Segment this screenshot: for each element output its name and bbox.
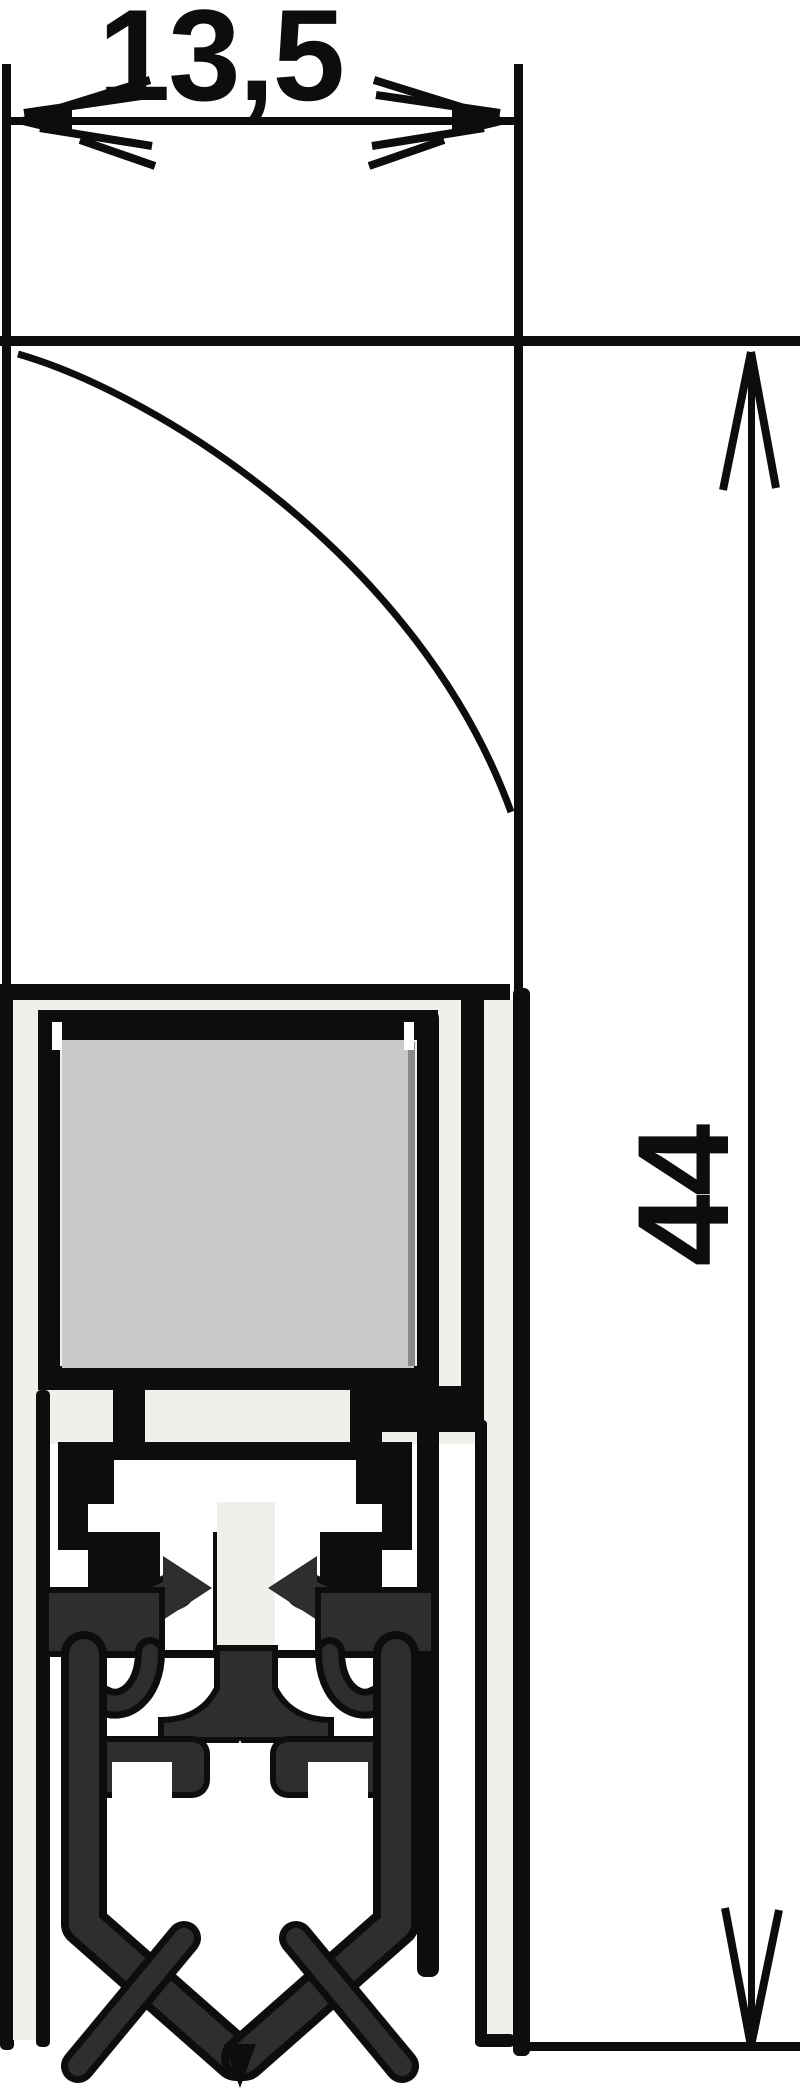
center-notch	[212, 1740, 268, 1798]
right-wall-upper	[514, 64, 523, 992]
width-dim-label: 13,5	[98, 0, 343, 128]
inner-left-wall-line	[36, 1390, 50, 2047]
center-cavity	[106, 1798, 374, 2054]
door-swing-arc	[18, 354, 511, 812]
rail-lip-right	[356, 1460, 382, 1504]
height-arrow-top-barb-1	[723, 352, 751, 490]
housing-middle-bar	[0, 984, 510, 1000]
seal-profile-drawing: 13,5 44	[0, 0, 800, 2094]
height-arrow-bottom-barb-1	[725, 1908, 751, 2046]
foot-right-notch	[308, 1762, 368, 1798]
inner-right-wall-upper	[461, 1000, 484, 1432]
casing-left-strip	[13, 1444, 38, 2040]
height-arrow-bottom-barb-2	[751, 1910, 779, 2046]
width-dimension-group: 13,5	[6, 0, 518, 166]
pocket-frame-top	[38, 1010, 438, 1040]
height-dim-label: 44	[610, 1124, 756, 1266]
left-wall-upper	[2, 64, 11, 986]
rail-wall-right	[382, 1442, 412, 1550]
pocket-frame-right	[417, 1010, 439, 1977]
drawing-canvas: 13,5 44	[0, 0, 800, 2094]
pocket-slit-right	[404, 1022, 414, 1050]
pocket-frame-left	[38, 1010, 60, 1390]
rail-stem-right	[350, 1384, 382, 1448]
wing-hook-left	[102, 1652, 150, 1704]
rail-lip-left	[88, 1460, 114, 1504]
inner-right-wall-lower	[475, 1420, 487, 2046]
foam-block	[62, 1040, 414, 1368]
wing-hook-right	[330, 1652, 378, 1704]
foam-edge-shadow	[408, 1042, 415, 1366]
casing-right-strip	[484, 1444, 513, 2036]
rail-wall-left	[58, 1442, 88, 1550]
rubber-center-stem	[217, 1502, 275, 1662]
housing-top-line	[0, 336, 800, 346]
pocket-slit-left	[52, 1022, 62, 1050]
rubber-trumpet	[161, 1648, 331, 1740]
left-wall-lower	[0, 984, 14, 2050]
right-wall-lower	[513, 988, 530, 2056]
rail-stem-left	[113, 1384, 145, 1448]
pocket-right-junction-block	[382, 1386, 461, 1432]
height-dimension-group: 44	[530, 352, 800, 2051]
rail-top-plate	[58, 1442, 412, 1460]
foot-left-notch	[112, 1762, 172, 1798]
height-dim-bottom-extension	[530, 2042, 800, 2051]
